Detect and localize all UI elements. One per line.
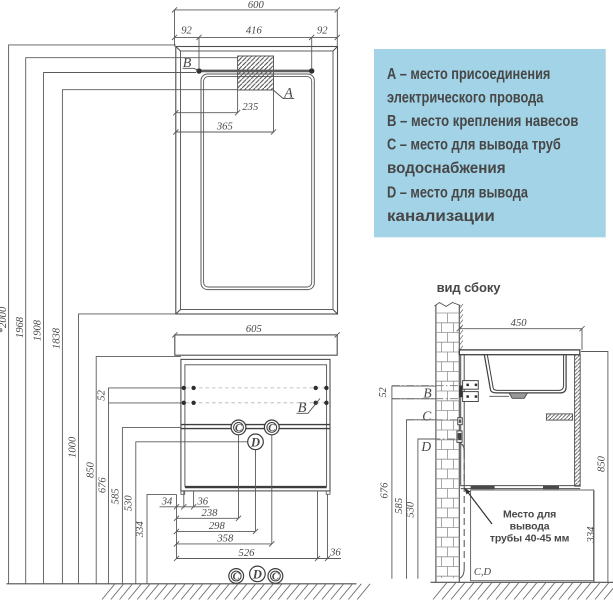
svg-text:530: 530	[406, 501, 417, 518]
svg-text:*2000: *2000	[0, 306, 9, 333]
svg-text:1968: 1968	[15, 316, 26, 338]
svg-text:676: 676	[379, 482, 390, 499]
svg-text:530: 530	[124, 495, 135, 512]
svg-text:C: C	[272, 571, 280, 582]
svg-text:D – место для вывода: D – место для вывода	[387, 184, 529, 201]
svg-text:электрического провода: электрического провода	[387, 89, 544, 106]
svg-text:B: B	[423, 385, 431, 400]
svg-text:34: 34	[161, 496, 173, 507]
svg-text:52: 52	[96, 389, 107, 400]
svg-text:238: 238	[202, 508, 219, 519]
svg-text:Место для: Место для	[503, 508, 556, 520]
svg-text:850: 850	[85, 461, 96, 478]
svg-text:В – место крепления навесов: В – место крепления навесов	[387, 113, 578, 130]
svg-text:235: 235	[242, 102, 258, 113]
svg-text:C: C	[235, 423, 243, 434]
svg-text:водоснабжения: водоснабжения	[387, 160, 506, 177]
svg-text:298: 298	[209, 521, 226, 532]
svg-text:92: 92	[181, 26, 192, 37]
svg-text:1000: 1000	[68, 436, 79, 458]
svg-text:585: 585	[394, 498, 405, 514]
svg-text:C: C	[268, 423, 276, 434]
svg-text:52: 52	[378, 387, 389, 397]
svg-text:A: A	[283, 86, 293, 102]
svg-text:C: C	[233, 571, 241, 582]
svg-text:D: D	[252, 567, 262, 581]
svg-text:358: 358	[216, 534, 234, 545]
svg-text:526: 526	[239, 548, 256, 559]
svg-text:трубы 40-45 мм: трубы 40-45 мм	[490, 533, 570, 545]
svg-text:C,D: C,D	[474, 567, 492, 578]
svg-text:334: 334	[586, 526, 597, 544]
svg-text:600: 600	[248, 0, 265, 11]
svg-text:вывода: вывода	[510, 521, 550, 533]
svg-text:450: 450	[511, 318, 528, 329]
svg-text:605: 605	[246, 324, 262, 335]
svg-text:334: 334	[135, 521, 146, 539]
svg-text:416: 416	[246, 26, 263, 37]
svg-text:А – место присоединения: А – место присоединения	[387, 66, 550, 84]
svg-text:585: 585	[110, 488, 121, 504]
svg-text:D: D	[420, 439, 431, 454]
svg-text:вид сбоку: вид сбоку	[437, 280, 502, 295]
svg-text:D: D	[250, 435, 260, 449]
svg-text:36: 36	[197, 496, 209, 507]
svg-text:C: C	[422, 409, 432, 424]
svg-text:С – место для вывода труб: С – место для вывода труб	[387, 136, 561, 153]
svg-text:365: 365	[216, 121, 233, 132]
svg-text:1838: 1838	[52, 327, 63, 349]
svg-text:676: 676	[98, 477, 109, 494]
svg-text:36: 36	[329, 547, 341, 558]
svg-text:850: 850	[597, 455, 608, 472]
svg-text:канализации: канализации	[387, 208, 495, 225]
svg-text:1908: 1908	[33, 319, 44, 341]
svg-text:92: 92	[317, 26, 328, 37]
